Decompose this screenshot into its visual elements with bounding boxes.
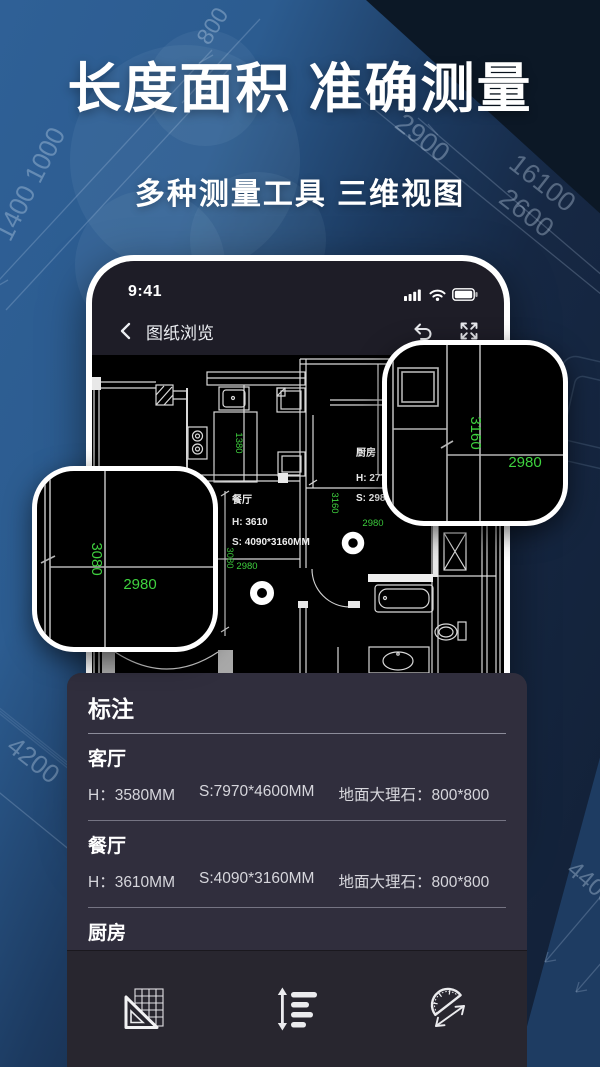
length-measure-tool-button[interactable] — [220, 951, 373, 1067]
line-spacing-icon — [274, 986, 320, 1032]
back-button[interactable] — [116, 321, 134, 341]
annotation-row-living: 客厅 H：3580MM S:7970*4600MM 地面大理石：800*800 — [88, 734, 506, 820]
fullscreen-button[interactable] — [458, 320, 480, 342]
back-chevron-icon — [116, 321, 134, 341]
entry-pillar — [102, 650, 115, 673]
dim-label: 2980 — [236, 561, 257, 572]
dim-label: 2980 — [123, 576, 156, 593]
room-floor: 地面大理石：800*800 — [338, 870, 489, 892]
dim-label: 1380 — [233, 432, 244, 453]
protractor-icon — [427, 986, 473, 1032]
bottom-toolbar — [67, 950, 527, 1067]
room-details: H：3610MM S:4090*3160MM 地面大理石：800*800 — [88, 870, 506, 892]
hero-title: 长度面积 准确测量 — [0, 44, 600, 123]
room-size: S:7970*4600MM — [199, 783, 314, 805]
dim-label: 3160 — [329, 492, 340, 513]
status-time: 9:41 — [128, 283, 162, 301]
fullscreen-icon — [458, 320, 480, 342]
dim-label: 3080 — [224, 547, 235, 568]
room-name: 客厅 — [88, 747, 506, 772]
hero-section: 长度面积 准确测量 多种测量工具 三维视图 — [0, 44, 600, 213]
annotation-panel: 标注 客厅 H：3580MM S:7970*4600MM 地面大理石：800*8… — [67, 673, 527, 1067]
bg-dim-label: 4400 — [562, 856, 600, 911]
dim-label: 2980 — [508, 454, 541, 471]
dim-label: 2980 — [362, 518, 383, 529]
room-name: 餐厅 — [231, 493, 252, 506]
dim-label: 3160 — [467, 416, 484, 449]
page-title: 图纸浏览 — [146, 319, 214, 344]
room-floor: 地面大理石：800*800 — [338, 783, 489, 805]
signal-bars-icon — [404, 289, 423, 301]
zoom-callout-left-drawing: 3080 2980 — [37, 471, 213, 647]
angle-measure-tool-button[interactable] — [374, 951, 527, 1067]
battery-icon — [452, 288, 478, 301]
wifi-icon — [429, 289, 446, 301]
room-size: S:4090*3160MM — [199, 870, 314, 892]
annotation-row-dining: 餐厅 H：3610MM S:4090*3160MM 地面大理石：800*800 — [88, 821, 506, 907]
undo-icon — [412, 320, 434, 342]
room-height: H: 3610 — [232, 517, 268, 528]
room-height: H：3580MM — [88, 783, 175, 805]
room-size: S: 4090*3160MM — [232, 537, 310, 548]
status-bar: 9:41 — [92, 261, 504, 307]
set-square-icon — [121, 986, 167, 1032]
zoom-callout-right-drawing: 3160 2980 — [387, 345, 563, 521]
zoom-callout-left: 3080 2980 — [32, 466, 218, 652]
room-details: H：3580MM S:7970*4600MM 地面大理石：800*800 — [88, 783, 506, 805]
room-height: H：3610MM — [88, 870, 175, 892]
room-name: 厨房 — [356, 446, 376, 459]
dim-label: 3080 — [88, 542, 105, 575]
undo-button[interactable] — [412, 320, 434, 342]
bg-dim-label: 4200 — [2, 730, 66, 789]
bg-dim-label: 800 — [191, 3, 233, 49]
room-name: 餐厅 — [88, 834, 506, 859]
hero-subtitle: 多种测量工具 三维视图 — [0, 169, 600, 213]
measure-handle[interactable] — [345, 535, 361, 551]
measure-handle[interactable] — [254, 585, 271, 602]
annotation-panel-title: 标注 — [88, 673, 506, 724]
entry-pillar — [218, 650, 233, 673]
room-name: 厨房 — [88, 921, 506, 946]
area-measure-tool-button[interactable] — [67, 951, 220, 1067]
zoom-callout-right: 3160 2980 — [382, 340, 568, 526]
